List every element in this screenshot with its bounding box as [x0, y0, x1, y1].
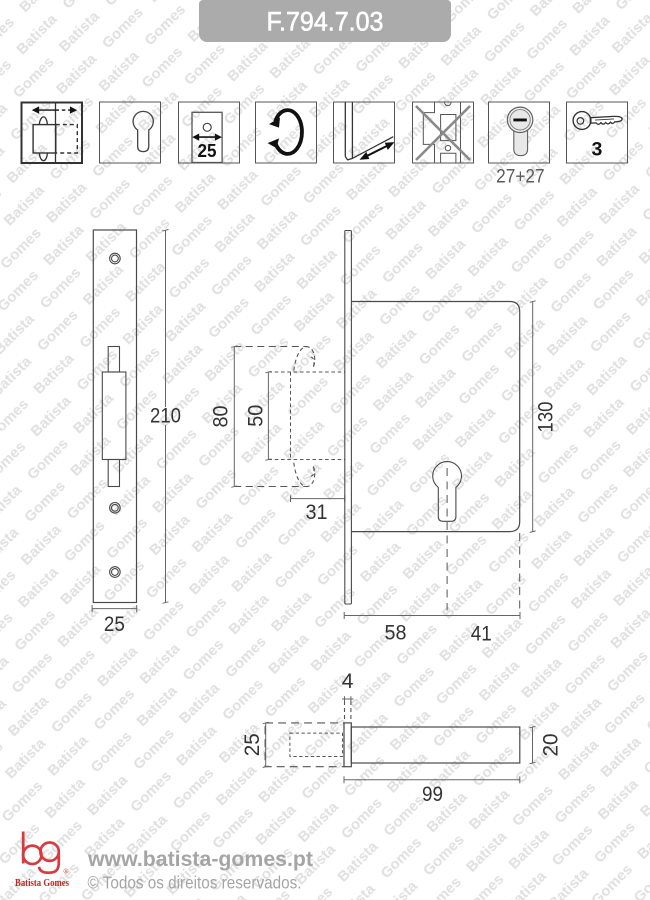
svg-text:25: 25: [241, 733, 264, 756]
svg-text:25: 25: [104, 613, 125, 636]
svg-text:F.794.7.03: F.794.7.03: [267, 7, 384, 37]
svg-text:210: 210: [150, 405, 181, 428]
svg-text:50: 50: [245, 405, 268, 427]
svg-text:© Todos os direitos reservados: © Todos os direitos reservados.: [88, 873, 302, 893]
svg-text:3: 3: [591, 138, 602, 160]
svg-text:www.batista-gomes.pt: www.batista-gomes.pt: [87, 848, 313, 871]
svg-text:20: 20: [540, 734, 563, 757]
svg-text:27+27: 27+27: [496, 166, 545, 187]
svg-text:Batista Gomes: Batista Gomes: [15, 878, 69, 889]
svg-text:®: ®: [64, 868, 69, 876]
svg-text:99: 99: [422, 783, 443, 806]
svg-text:41: 41: [471, 623, 492, 646]
svg-text:31: 31: [306, 501, 328, 524]
svg-text:4: 4: [342, 670, 354, 693]
svg-text:80: 80: [210, 406, 233, 428]
svg-text:58: 58: [385, 622, 407, 645]
svg-text:130: 130: [535, 402, 558, 433]
svg-text:25: 25: [198, 141, 217, 161]
